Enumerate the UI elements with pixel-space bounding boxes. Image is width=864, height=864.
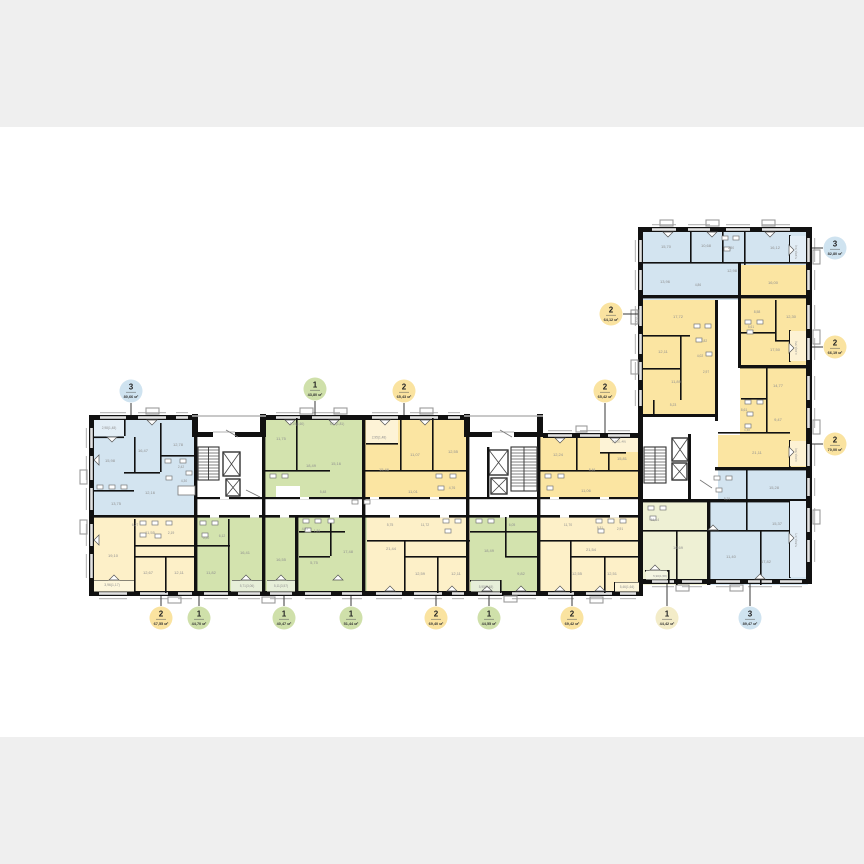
svg-text:3: 3: [748, 610, 753, 619]
svg-text:1,40: 1,40: [744, 428, 750, 432]
svg-text:2,95(1,48): 2,95(1,48): [634, 311, 638, 325]
svg-text:8,46: 8,46: [589, 468, 596, 472]
svg-text:70,00 м²: 70,00 м²: [828, 448, 843, 452]
svg-text:3,00(1,50): 3,00(1,50): [794, 448, 798, 462]
svg-text:80,66 м²: 80,66 м²: [124, 395, 139, 399]
svg-text:11,72: 11,72: [421, 523, 429, 527]
svg-text:12,11: 12,11: [658, 349, 668, 354]
svg-text:5,80(1,67): 5,80(1,67): [794, 533, 798, 547]
svg-text:2,19: 2,19: [168, 531, 175, 535]
svg-text:15,70: 15,70: [661, 244, 672, 249]
svg-text:66,19 м²: 66,19 м²: [828, 351, 843, 355]
svg-text:4,37: 4,37: [302, 527, 309, 531]
svg-text:16,12: 16,12: [770, 245, 781, 250]
svg-text:3: 3: [129, 383, 134, 392]
svg-text:1: 1: [197, 610, 202, 619]
svg-text:15,16: 15,16: [331, 461, 342, 466]
svg-text:15,37: 15,37: [772, 521, 783, 526]
svg-text:5,31: 5,31: [597, 526, 603, 530]
svg-text:10,68: 10,68: [701, 243, 712, 248]
svg-text:5,71(3,06): 5,71(3,06): [240, 584, 255, 588]
svg-text:3,96(1,17): 3,96(1,17): [104, 583, 119, 587]
svg-text:8,58: 8,58: [754, 310, 761, 314]
svg-text:12,30: 12,30: [786, 314, 797, 319]
svg-text:5,11(3,57): 5,11(3,57): [274, 584, 288, 588]
svg-text:11,07: 11,07: [410, 452, 420, 457]
svg-text:1,86: 1,86: [314, 529, 320, 533]
svg-text:12,11: 12,11: [451, 571, 461, 576]
svg-text:1: 1: [349, 610, 354, 619]
svg-text:1: 1: [282, 610, 287, 619]
svg-text:2: 2: [833, 436, 838, 445]
svg-text:2,50: 2,50: [728, 246, 734, 250]
svg-text:12,59: 12,59: [415, 571, 426, 576]
svg-text:5,75: 5,75: [387, 523, 394, 527]
svg-text:18,49: 18,49: [306, 463, 317, 468]
svg-text:17,50: 17,50: [770, 347, 781, 352]
svg-text:15,28: 15,28: [769, 485, 780, 490]
svg-text:12,51: 12,51: [607, 571, 618, 576]
svg-text:2: 2: [570, 610, 575, 619]
svg-text:44,55 м²: 44,55 м²: [482, 622, 497, 626]
svg-text:2: 2: [159, 610, 164, 619]
svg-text:13,75: 13,75: [111, 501, 122, 506]
svg-text:17,48: 17,48: [343, 549, 354, 554]
svg-text:11,82: 11,82: [206, 570, 216, 575]
svg-text:11,75: 11,75: [276, 436, 286, 441]
svg-text:5,48: 5,48: [320, 490, 327, 494]
svg-text:44,42 м²: 44,42 м²: [660, 622, 675, 626]
svg-text:2: 2: [603, 383, 608, 392]
svg-text:64,12 м²: 64,12 м²: [604, 318, 619, 322]
svg-text:19,10: 19,10: [108, 553, 119, 558]
svg-text:16,55: 16,55: [276, 557, 287, 562]
svg-text:18,49: 18,49: [484, 548, 495, 553]
svg-text:6,05: 6,05: [509, 523, 516, 527]
svg-text:6,27: 6,27: [132, 523, 139, 527]
svg-text:5,25: 5,25: [724, 497, 730, 501]
svg-text:9,82: 9,82: [517, 571, 526, 576]
svg-text:11,01: 11,01: [408, 489, 418, 494]
svg-text:5,61: 5,61: [748, 325, 754, 329]
svg-text:12,55: 12,55: [572, 571, 583, 576]
svg-text:11,89: 11,89: [671, 379, 681, 384]
svg-text:2,97: 2,97: [703, 370, 709, 374]
svg-text:12,16: 12,16: [145, 490, 156, 495]
svg-text:51,44 м²: 51,44 м²: [344, 622, 359, 626]
svg-text:65,42 м²: 65,42 м²: [598, 395, 613, 399]
svg-text:12,11: 12,11: [174, 570, 184, 575]
svg-text:5,90(1,58): 5,90(1,58): [653, 574, 667, 578]
svg-text:4,76: 4,76: [449, 486, 456, 490]
svg-text:16,69: 16,69: [673, 545, 684, 550]
svg-text:12,98: 12,98: [727, 268, 738, 273]
svg-text:16,47: 16,47: [138, 448, 149, 453]
svg-text:15,81: 15,81: [617, 456, 628, 461]
svg-text:14,77: 14,77: [773, 383, 784, 388]
svg-text:44,70 м²: 44,70 м²: [192, 622, 207, 626]
svg-text:2,98(1,48): 2,98(1,48): [102, 426, 117, 430]
svg-text:43,80 м²: 43,80 м²: [308, 393, 323, 397]
svg-text:3: 3: [833, 240, 838, 249]
svg-text:21,11: 21,11: [752, 450, 762, 455]
svg-text:2: 2: [609, 306, 614, 315]
svg-text:5,46(1,64): 5,46(1,64): [620, 585, 635, 589]
svg-text:2: 2: [402, 383, 407, 392]
svg-text:11,70: 11,70: [564, 523, 572, 527]
svg-text:40,47 м²: 40,47 м²: [277, 622, 292, 626]
svg-text:12,55: 12,55: [448, 449, 459, 454]
svg-text:4,02: 4,02: [697, 354, 703, 358]
svg-text:15,98: 15,98: [105, 458, 116, 463]
svg-text:3,82: 3,82: [701, 339, 707, 343]
svg-text:2: 2: [434, 610, 439, 619]
svg-text:5,23: 5,23: [670, 403, 677, 407]
svg-text:16,41: 16,41: [240, 550, 251, 555]
svg-text:89,47 м²: 89,47 м²: [743, 622, 758, 626]
svg-text:2,91: 2,91: [617, 527, 623, 531]
svg-text:2,42: 2,42: [178, 465, 184, 469]
svg-text:2,95(1,48): 2,95(1,48): [612, 440, 626, 444]
svg-text:1: 1: [665, 610, 670, 619]
svg-text:5,21(1,81): 5,21(1,81): [330, 422, 345, 426]
svg-text:15,46: 15,46: [379, 467, 390, 472]
svg-text:1: 1: [487, 610, 492, 619]
svg-text:4,30: 4,30: [181, 479, 187, 483]
svg-text:69,42 м²: 69,42 м²: [565, 622, 580, 626]
svg-text:17,82: 17,82: [761, 559, 772, 564]
svg-text:5,19(1,60): 5,19(1,60): [290, 422, 305, 426]
svg-text:2,95(1,48): 2,95(1,48): [372, 436, 387, 440]
svg-text:5,75: 5,75: [310, 560, 319, 565]
svg-text:11,06: 11,06: [581, 488, 591, 493]
svg-text:1: 1: [313, 381, 318, 390]
svg-text:3,10(1,55): 3,10(1,55): [794, 341, 798, 355]
svg-text:12,67: 12,67: [143, 570, 154, 575]
svg-text:11,14: 11,14: [651, 518, 659, 522]
svg-text:69,40 м²: 69,40 м²: [429, 622, 444, 626]
svg-text:11,55: 11,55: [145, 530, 155, 535]
svg-text:21,54: 21,54: [586, 547, 597, 552]
svg-text:21,44: 21,44: [386, 546, 397, 551]
svg-text:82,80 м²: 82,80 м²: [828, 252, 843, 256]
svg-text:17,72: 17,72: [673, 314, 684, 319]
svg-text:9,47: 9,47: [774, 417, 783, 422]
svg-text:4,86: 4,86: [695, 283, 701, 287]
svg-text:12,78: 12,78: [173, 442, 184, 447]
svg-text:65,43 м²: 65,43 м²: [397, 395, 412, 399]
svg-text:6,12: 6,12: [219, 534, 226, 538]
svg-text:5,98(1,53): 5,98(1,53): [794, 245, 798, 259]
svg-text:13,96: 13,96: [660, 279, 671, 284]
svg-text:8,61: 8,61: [741, 408, 748, 412]
svg-text:5,95(1,48): 5,95(1,48): [479, 585, 494, 589]
svg-text:5,20: 5,20: [203, 536, 210, 540]
svg-text:67,55 м²: 67,55 м²: [154, 622, 169, 626]
svg-text:2: 2: [833, 339, 838, 348]
svg-text:12,24: 12,24: [553, 452, 564, 457]
svg-text:11,40: 11,40: [726, 554, 736, 559]
svg-text:16,00: 16,00: [768, 280, 779, 285]
